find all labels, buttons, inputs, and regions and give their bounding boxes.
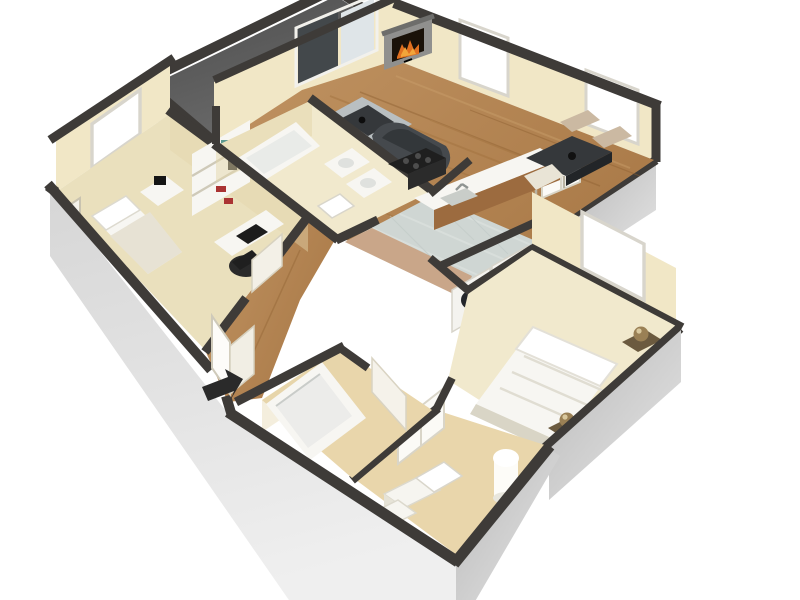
book-red — [216, 186, 226, 192]
floor-lamp-top — [493, 449, 519, 467]
floorplan-3d-render — [0, 0, 800, 600]
bedside-lamp-1 — [634, 327, 649, 342]
burner-1 — [403, 158, 409, 164]
floorplan-stage — [0, 0, 800, 600]
table-centerpiece — [568, 152, 576, 160]
sink-bowl-a — [338, 158, 354, 168]
alarm-clock — [154, 176, 166, 185]
burner-4 — [425, 157, 431, 163]
burner-2 — [415, 153, 421, 159]
table-decor — [359, 117, 366, 124]
sink-bowl-b — [360, 178, 376, 188]
w-corner-cap — [48, 186, 56, 192]
bedside-lamp-1-hi — [636, 328, 641, 333]
bedside-lamp-2-hi — [562, 414, 567, 419]
book-red2 — [224, 198, 233, 204]
burner-3 — [413, 163, 419, 169]
